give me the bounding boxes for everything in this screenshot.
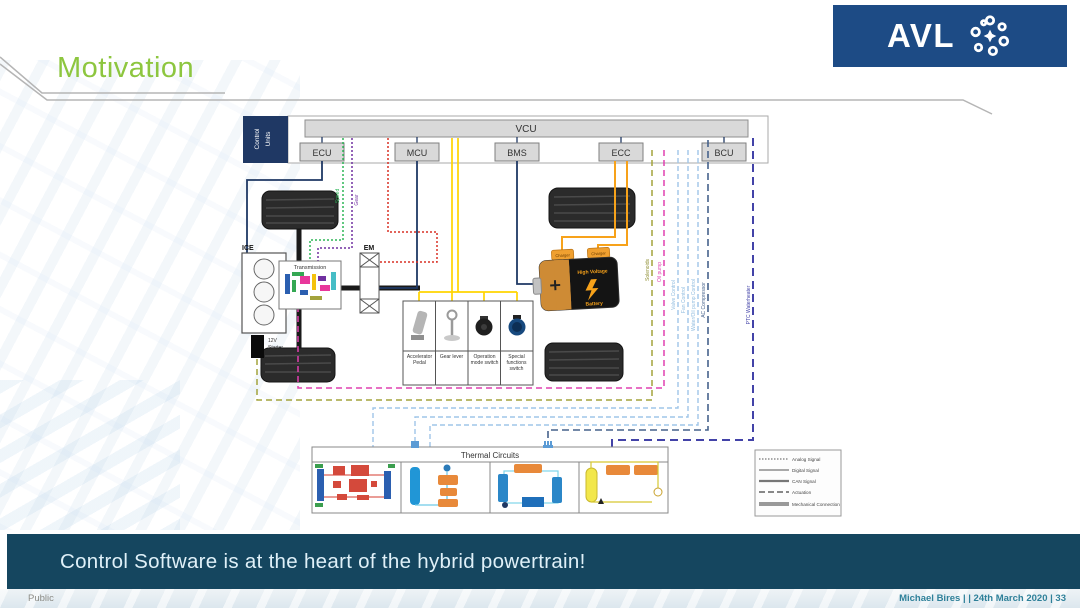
legend: Analog Signal Digital Signal CAN Signal …	[755, 450, 841, 516]
legend-actuation: Actuation	[792, 490, 812, 495]
footer-classification: Public	[28, 593, 54, 604]
oil-pump-label: Oil pump	[657, 262, 663, 282]
starter-label-2: Starter	[268, 345, 283, 351]
title-underline	[0, 57, 992, 114]
thermal-circuits-panel: Thermal Circuits	[312, 441, 668, 513]
unit-label-mcu: MCU	[407, 148, 428, 158]
thermal-title: Thermal Circuits	[461, 451, 519, 460]
ptc-waterheater-label: PTC Waterheater	[746, 285, 752, 324]
driver-control-label-gear-lever: Gear lever	[436, 354, 467, 360]
vcu-label: VCU	[515, 124, 536, 135]
svg-text:Charger: Charger	[555, 252, 570, 258]
tire-rear-right-icon	[545, 343, 623, 381]
transmission-label: Transmission	[294, 265, 327, 271]
battery-icon: Charger Charger High Voltage Battery	[531, 247, 619, 311]
em-label: EM	[364, 245, 375, 252]
powertrain-diagram: Control Units VCU ECU MCU BMS ECC	[0, 0, 1080, 608]
legend-digital: Digital Signal	[792, 468, 819, 473]
em-box: EM	[360, 245, 379, 313]
banner-text: Control Software is at the heart of the …	[7, 550, 586, 574]
tire-front-right-icon	[549, 188, 635, 228]
key-message-banner: Control Software is at the heart of the …	[7, 534, 1080, 589]
legend-can: CAN Signal	[792, 479, 816, 484]
valve-control-label: Valve Control	[671, 280, 677, 310]
legend-analog: Analog Signal	[792, 457, 820, 462]
gear-signal-label: Gear	[354, 194, 360, 205]
unit-label-bcu: BCU	[714, 148, 733, 158]
driver-controls-panel	[403, 301, 533, 385]
unit-label-ecu: ECU	[312, 148, 331, 158]
battery-label-2: Battery	[585, 301, 603, 308]
legend-mechanical: Mechanical Connection	[792, 502, 840, 507]
water-oil-pump-label: Water/Oil pump Control	[691, 279, 697, 331]
control-units-label-1: Control	[254, 128, 261, 150]
control-units-label-2: Units	[265, 131, 272, 147]
ac-compressor-label: AC Compressor	[701, 282, 707, 318]
tire-front-left-icon	[262, 191, 338, 229]
starter-label-1: 12V	[268, 338, 278, 344]
ice-label: ICE	[242, 245, 254, 252]
unit-label-bms: BMS	[507, 148, 527, 158]
battery-tab-left: Charger	[551, 249, 573, 260]
fan-control-label: Fan Control	[681, 287, 687, 313]
battery-tab-right: Charger	[587, 247, 609, 258]
solenoids-label: Solenoids	[645, 259, 651, 281]
svg-text:Charger: Charger	[591, 250, 606, 256]
speed-signal-label: Speed	[335, 189, 341, 204]
driver-control-label-function-switch: Special functions switch	[501, 354, 532, 372]
control-units-panel: Control Units VCU ECU MCU BMS ECC	[243, 116, 768, 163]
slide-footer: Public Michael Bires | | 24th March 2020…	[0, 589, 1080, 608]
footer-author-date-page: Michael Bires | | 24th March 2020 | 33	[899, 593, 1066, 604]
unit-label-ecc: ECC	[611, 148, 631, 158]
driver-control-label-accelerator: Accelerator Pedal	[404, 354, 435, 366]
driver-control-label-mode-switch: Operation mode switch	[469, 354, 500, 366]
slide: Motivation AVL Control Un	[0, 0, 1080, 608]
transmission-box: Transmission	[279, 261, 341, 309]
